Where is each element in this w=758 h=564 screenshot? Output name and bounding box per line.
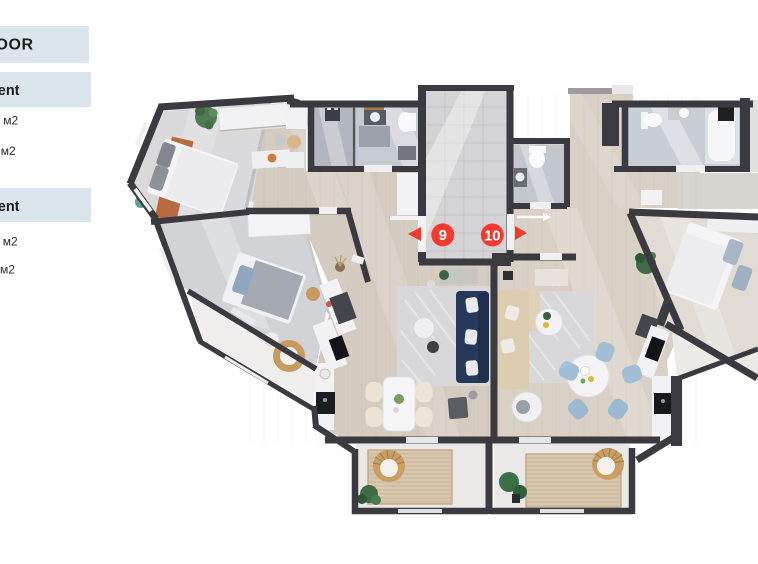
svg-text:Apartment: Apartment [0,83,20,99]
svg-text:0.03 м2: 0.03 м2 [0,144,16,158]
svg-text:Apartment: Apartment [0,199,20,215]
svg-text:0.00 м2: 0.00 м2 [0,114,18,128]
svg-text:0.00 м2: 0.00 м2 [0,263,15,277]
svg-text:0.00 м2: 0.00 м2 [0,235,18,249]
svg-text:10: 10 [484,227,501,244]
svg-text:FLOOR: FLOOR [0,37,34,54]
svg-text:9: 9 [439,227,447,244]
